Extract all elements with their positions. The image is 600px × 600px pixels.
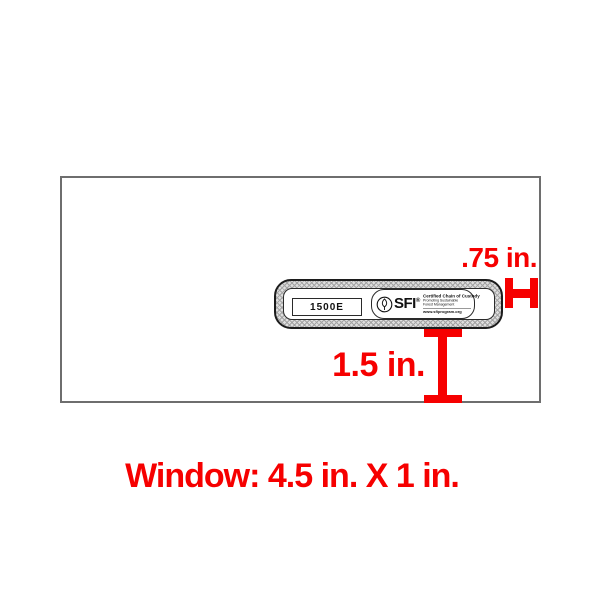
sfi-website: www.sfiprogram.org — [423, 310, 477, 314]
window-size-caption: Window: 4.5 in. X 1 in. — [125, 459, 459, 493]
sfi-tagline-line2: Forest Management — [423, 303, 477, 307]
right-offset-marker-bar — [505, 289, 538, 298]
bottom-offset-marker-stem — [438, 329, 447, 403]
sfi-text-block: Certified Chain of Custody Promoting Sus… — [423, 294, 477, 314]
sfi-acronym: SFI® — [394, 296, 420, 311]
envelope-window-diagram: 1500E SFI® Certified Chain of Custody Pr… — [0, 0, 600, 600]
registered-trademark-mark: ® — [416, 298, 420, 304]
right-offset-label: .75 in. — [461, 244, 537, 272]
leaf-icon — [376, 296, 393, 313]
sfi-certification-logo: SFI® Certified Chain of Custody Promotin… — [371, 289, 475, 319]
bottom-offset-label: 1.5 in. — [332, 348, 425, 382]
window-label-box: 1500E — [292, 298, 362, 316]
window-label: 1500E — [310, 302, 344, 313]
bottom-offset-marker-bottom-tick — [424, 395, 462, 403]
